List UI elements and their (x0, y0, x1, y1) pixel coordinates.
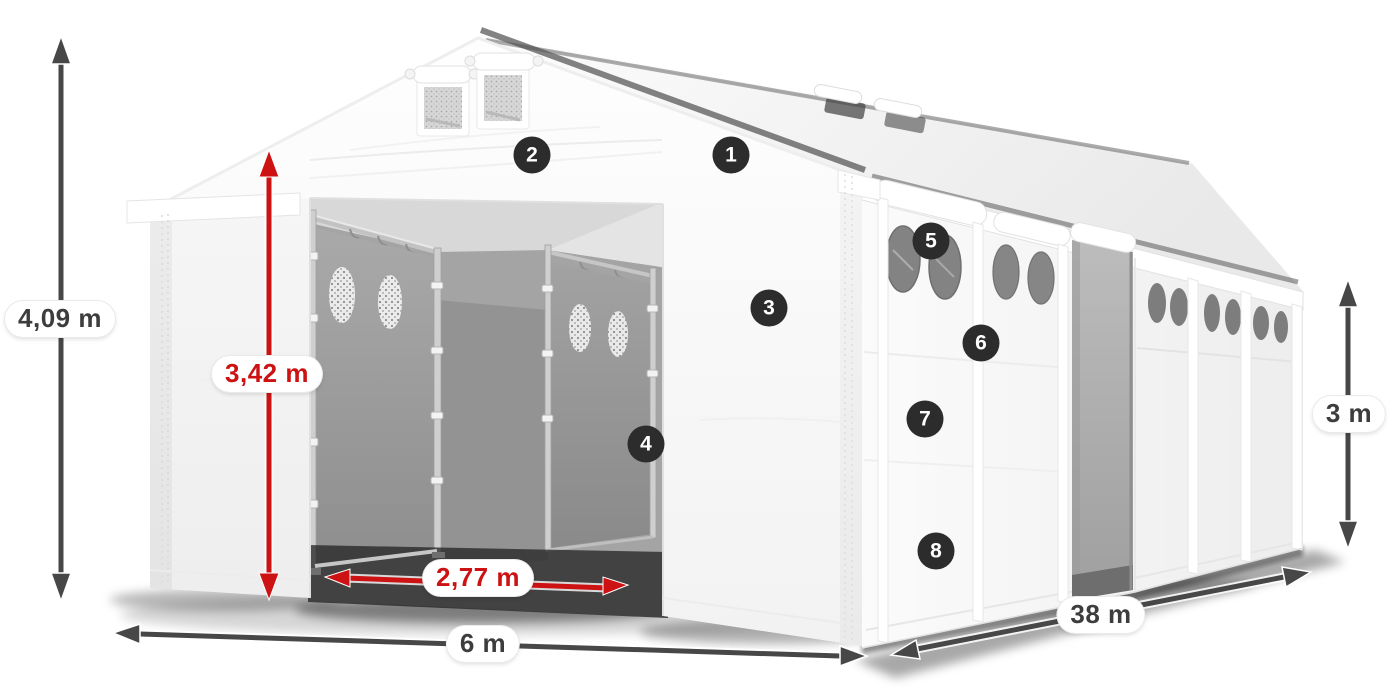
marker-5[interactable]: 5 (913, 223, 950, 260)
side-door-opening (1069, 221, 1138, 600)
marker-8[interactable]: 8 (918, 533, 955, 570)
inner-curtain-far (551, 262, 653, 548)
inner-gate-near (306, 210, 443, 572)
tent-illustration (0, 0, 1400, 700)
interior-far-area (437, 300, 548, 572)
label-length: 38 m (1057, 597, 1144, 633)
label-total-height: 4,09 m (5, 301, 115, 337)
inner-gate-far (542, 245, 658, 552)
marker-2[interactable]: 2 (514, 137, 551, 174)
label-side-height: 3 m (1313, 396, 1385, 432)
marker-7[interactable]: 7 (907, 401, 944, 438)
marker-6[interactable]: 6 (963, 325, 1000, 362)
marker-4[interactable]: 4 (628, 426, 665, 463)
label-entrance-width: 2,77 m (423, 560, 533, 596)
vent-roll-right (473, 53, 535, 70)
marker-1[interactable]: 1 (713, 137, 750, 174)
marker-3[interactable]: 3 (751, 290, 788, 327)
vent-roll-left (413, 66, 471, 83)
label-entrance-height: 3,42 m (212, 356, 322, 392)
label-front-width: 6 m (447, 626, 519, 662)
front-opening-interior (305, 195, 668, 618)
tent-dimension-diagram: 4,09 m 3,42 m 2,77 m 6 m 38 m 3 m 1 2 3 … (0, 0, 1400, 700)
